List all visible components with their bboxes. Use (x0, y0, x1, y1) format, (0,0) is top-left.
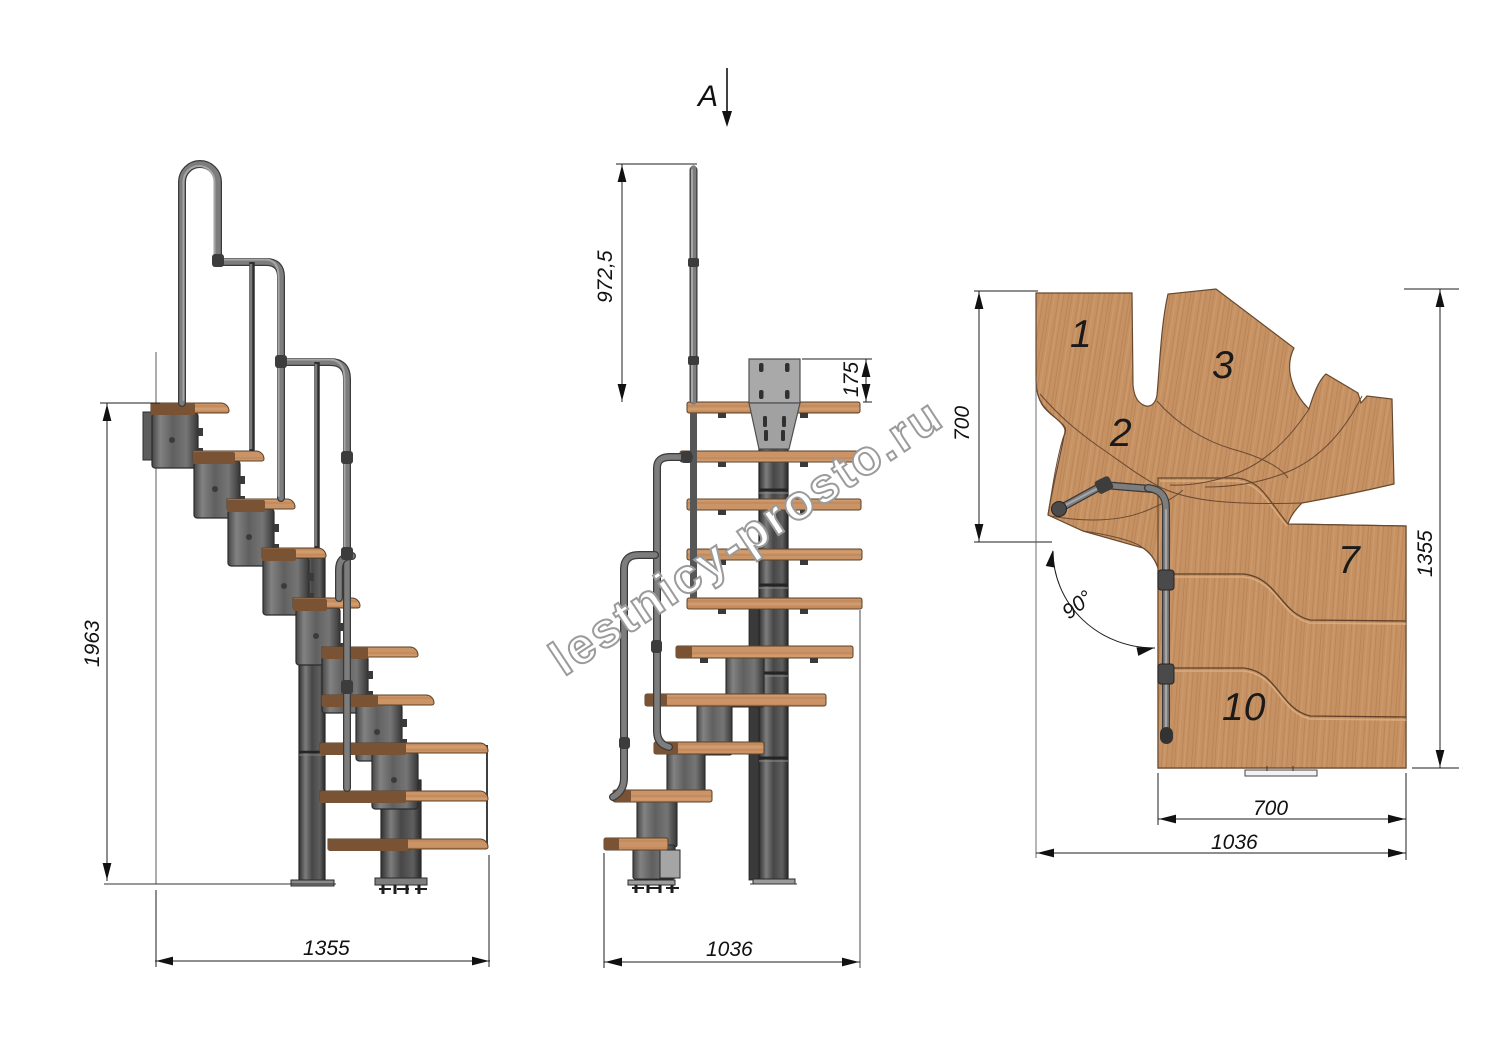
svg-text:1963: 1963 (81, 620, 104, 667)
svg-text:700: 700 (951, 406, 974, 441)
svg-text:7: 7 (1338, 539, 1361, 582)
svg-text:2: 2 (1109, 412, 1132, 455)
svg-text:A: A (696, 80, 718, 113)
svg-text:700: 700 (1253, 797, 1288, 820)
svg-text:10: 10 (1222, 686, 1266, 729)
svg-text:1355: 1355 (303, 937, 350, 960)
svg-text:1355: 1355 (1414, 530, 1437, 577)
svg-text:175: 175 (840, 362, 863, 397)
svg-text:1: 1 (1070, 313, 1092, 356)
svg-text:1036: 1036 (706, 938, 753, 961)
svg-text:3: 3 (1212, 344, 1234, 387)
svg-text:972,5: 972,5 (594, 250, 617, 303)
svg-text:1036: 1036 (1211, 831, 1258, 854)
